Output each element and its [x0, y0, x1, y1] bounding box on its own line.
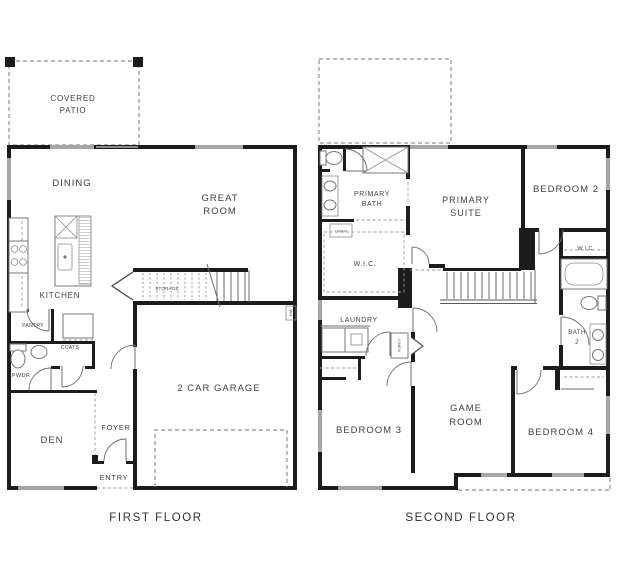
wall	[126, 461, 137, 464]
bath2-fixtures	[561, 259, 607, 364]
sink	[593, 350, 604, 361]
water-heater-label: WH	[289, 309, 294, 316]
primary-vanity	[322, 176, 338, 216]
patio-post	[133, 57, 143, 67]
stairs-second-floor	[410, 268, 537, 304]
linen-cabinet: LINEN	[330, 224, 352, 237]
room-label-bath2: 2	[575, 340, 579, 346]
room-label-great-room: GREAT	[201, 193, 238, 204]
wall	[543, 366, 610, 370]
room-label-primary-bath: PRIMARY	[354, 191, 390, 198]
room-label-foyer: FOYER	[101, 423, 130, 432]
wall	[411, 386, 415, 473]
garage-door	[155, 430, 287, 487]
island-seating	[79, 216, 91, 284]
linen-label: LINEN	[397, 339, 402, 352]
washer	[322, 328, 345, 352]
primary-shower	[363, 147, 408, 173]
room-label-great-room: ROOM	[203, 206, 237, 217]
window	[606, 158, 610, 190]
sink	[593, 330, 604, 341]
toilet	[581, 297, 597, 310]
dryer	[345, 328, 368, 352]
sink	[31, 346, 47, 359]
room-label-kitchen: KITCHEN	[40, 291, 81, 300]
wall	[318, 356, 365, 359]
window	[410, 145, 448, 149]
patio-roof-outline	[319, 59, 451, 143]
wall	[318, 219, 354, 222]
wall	[318, 169, 330, 172]
wall	[92, 341, 95, 369]
window	[50, 145, 94, 149]
room-label-bedroom4: BEDROOM 4	[528, 427, 594, 438]
sink	[324, 181, 336, 191]
room-label-bedroom3: BEDROOM 3	[336, 425, 402, 436]
laundry-appliances	[320, 326, 370, 352]
window	[318, 410, 322, 452]
toilet-tank	[320, 151, 326, 165]
wall	[358, 356, 361, 380]
room-label-wic2: W.I.C.	[577, 246, 594, 252]
room-label-dining: DINING	[52, 178, 91, 189]
window	[7, 158, 11, 200]
toilet-tank	[598, 296, 606, 310]
wall	[318, 296, 412, 300]
patio-post	[5, 57, 15, 67]
linen-closet-hall: LINEN	[391, 333, 423, 358]
window	[552, 473, 584, 477]
wall	[51, 366, 60, 369]
kitchen-counter	[9, 218, 28, 312]
wall	[454, 473, 610, 477]
powder-room-fixtures	[10, 344, 47, 368]
window	[481, 473, 507, 477]
window	[606, 396, 610, 434]
wall	[51, 309, 54, 344]
second-floor-caption: SECOND FLOOR	[405, 512, 516, 524]
toilet	[11, 350, 25, 368]
wall	[454, 473, 458, 490]
room-label-garage: 2 CAR GARAGE	[177, 383, 260, 394]
wall	[133, 268, 248, 272]
wall	[318, 377, 346, 380]
stair-direction-arrow	[112, 272, 133, 300]
wall	[133, 369, 137, 486]
room-label-covered-patio: PATIO	[60, 106, 87, 115]
room-label-storage: STORAGE	[155, 286, 178, 291]
patio-outline	[9, 61, 139, 145]
room-label-laundry: LAUNDRY	[340, 317, 378, 324]
window	[527, 145, 557, 149]
wall	[398, 268, 412, 308]
closet-door-symbol	[411, 337, 423, 355]
linen-label: LINEN	[335, 229, 348, 234]
stove	[9, 241, 28, 273]
room-label-primary-suite: SUITE	[450, 208, 482, 218]
window	[318, 300, 322, 320]
window	[338, 486, 382, 490]
window	[195, 145, 243, 149]
room-label-den: DEN	[40, 435, 63, 446]
kitchen-island	[55, 216, 91, 286]
primary-toilet	[320, 151, 342, 165]
floor-plan-drawing: WH COVERED PATIO DINING GREAT ROOM KITCH…	[0, 0, 617, 582]
room-label-entry: ENTRY	[100, 473, 129, 482]
refrigerator	[63, 314, 93, 340]
room-label-powder: PWDR	[12, 373, 30, 379]
wall	[555, 368, 560, 390]
room-label-game-room: GAME	[450, 403, 482, 414]
first-floor-caption: FIRST FLOOR	[109, 512, 202, 524]
room-label-wic-primary: W.I.C.	[354, 261, 377, 268]
wall	[559, 228, 610, 232]
toilet	[326, 152, 342, 165]
second-floor-plan: LINEN LINEN	[318, 59, 610, 524]
wall	[429, 264, 445, 268]
wall	[133, 486, 297, 490]
wall	[133, 301, 297, 305]
wall	[519, 228, 535, 270]
room-label-pantry: PANTRY	[22, 323, 44, 329]
wall	[7, 390, 97, 393]
wall	[521, 145, 525, 232]
faucet	[63, 255, 66, 258]
wall	[406, 206, 410, 235]
wall	[133, 305, 137, 347]
wall	[92, 455, 98, 463]
room-label-coats: COATS	[61, 345, 80, 351]
wall	[525, 228, 539, 232]
room-label-bedroom2: BEDROOM 2	[533, 184, 599, 195]
room-label-covered-patio: COVERED	[50, 94, 95, 103]
floor-plan-page: WH COVERED PATIO DINING GREAT ROOM KITCH…	[0, 0, 617, 582]
room-label-primary-bath: BATH	[362, 201, 383, 208]
tub-surround	[561, 259, 607, 289]
first-floor-plan: WH COVERED PATIO DINING GREAT ROOM KITCH…	[5, 57, 297, 524]
room-label-primary-suite: PRIMARY	[442, 195, 490, 205]
window	[18, 486, 64, 490]
sink	[324, 200, 336, 210]
room-label-bath2: BATH	[568, 330, 586, 336]
wall	[318, 145, 610, 149]
wall	[511, 366, 515, 473]
wall	[85, 366, 95, 369]
patio-slider-door	[96, 146, 138, 148]
room-label-game-room: ROOM	[449, 417, 483, 428]
first-floor-ghost-outline	[458, 478, 610, 490]
